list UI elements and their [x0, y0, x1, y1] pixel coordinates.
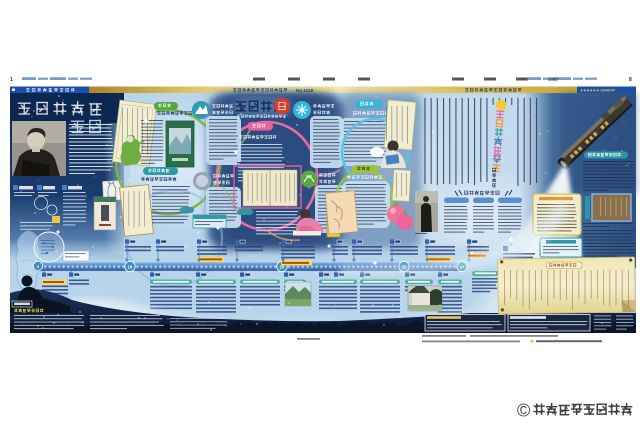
- svg-text:10: 10: [128, 265, 133, 270]
- svg-text:No.1118: No.1118: [296, 88, 314, 93]
- svg-text:©: ©: [517, 401, 530, 421]
- svg-text:8: 8: [629, 77, 632, 83]
- svg-text:★★★★★★ SUNDAY: ★★★★★★ SUNDAY: [580, 88, 616, 93]
- svg-text:1: 1: [10, 77, 13, 83]
